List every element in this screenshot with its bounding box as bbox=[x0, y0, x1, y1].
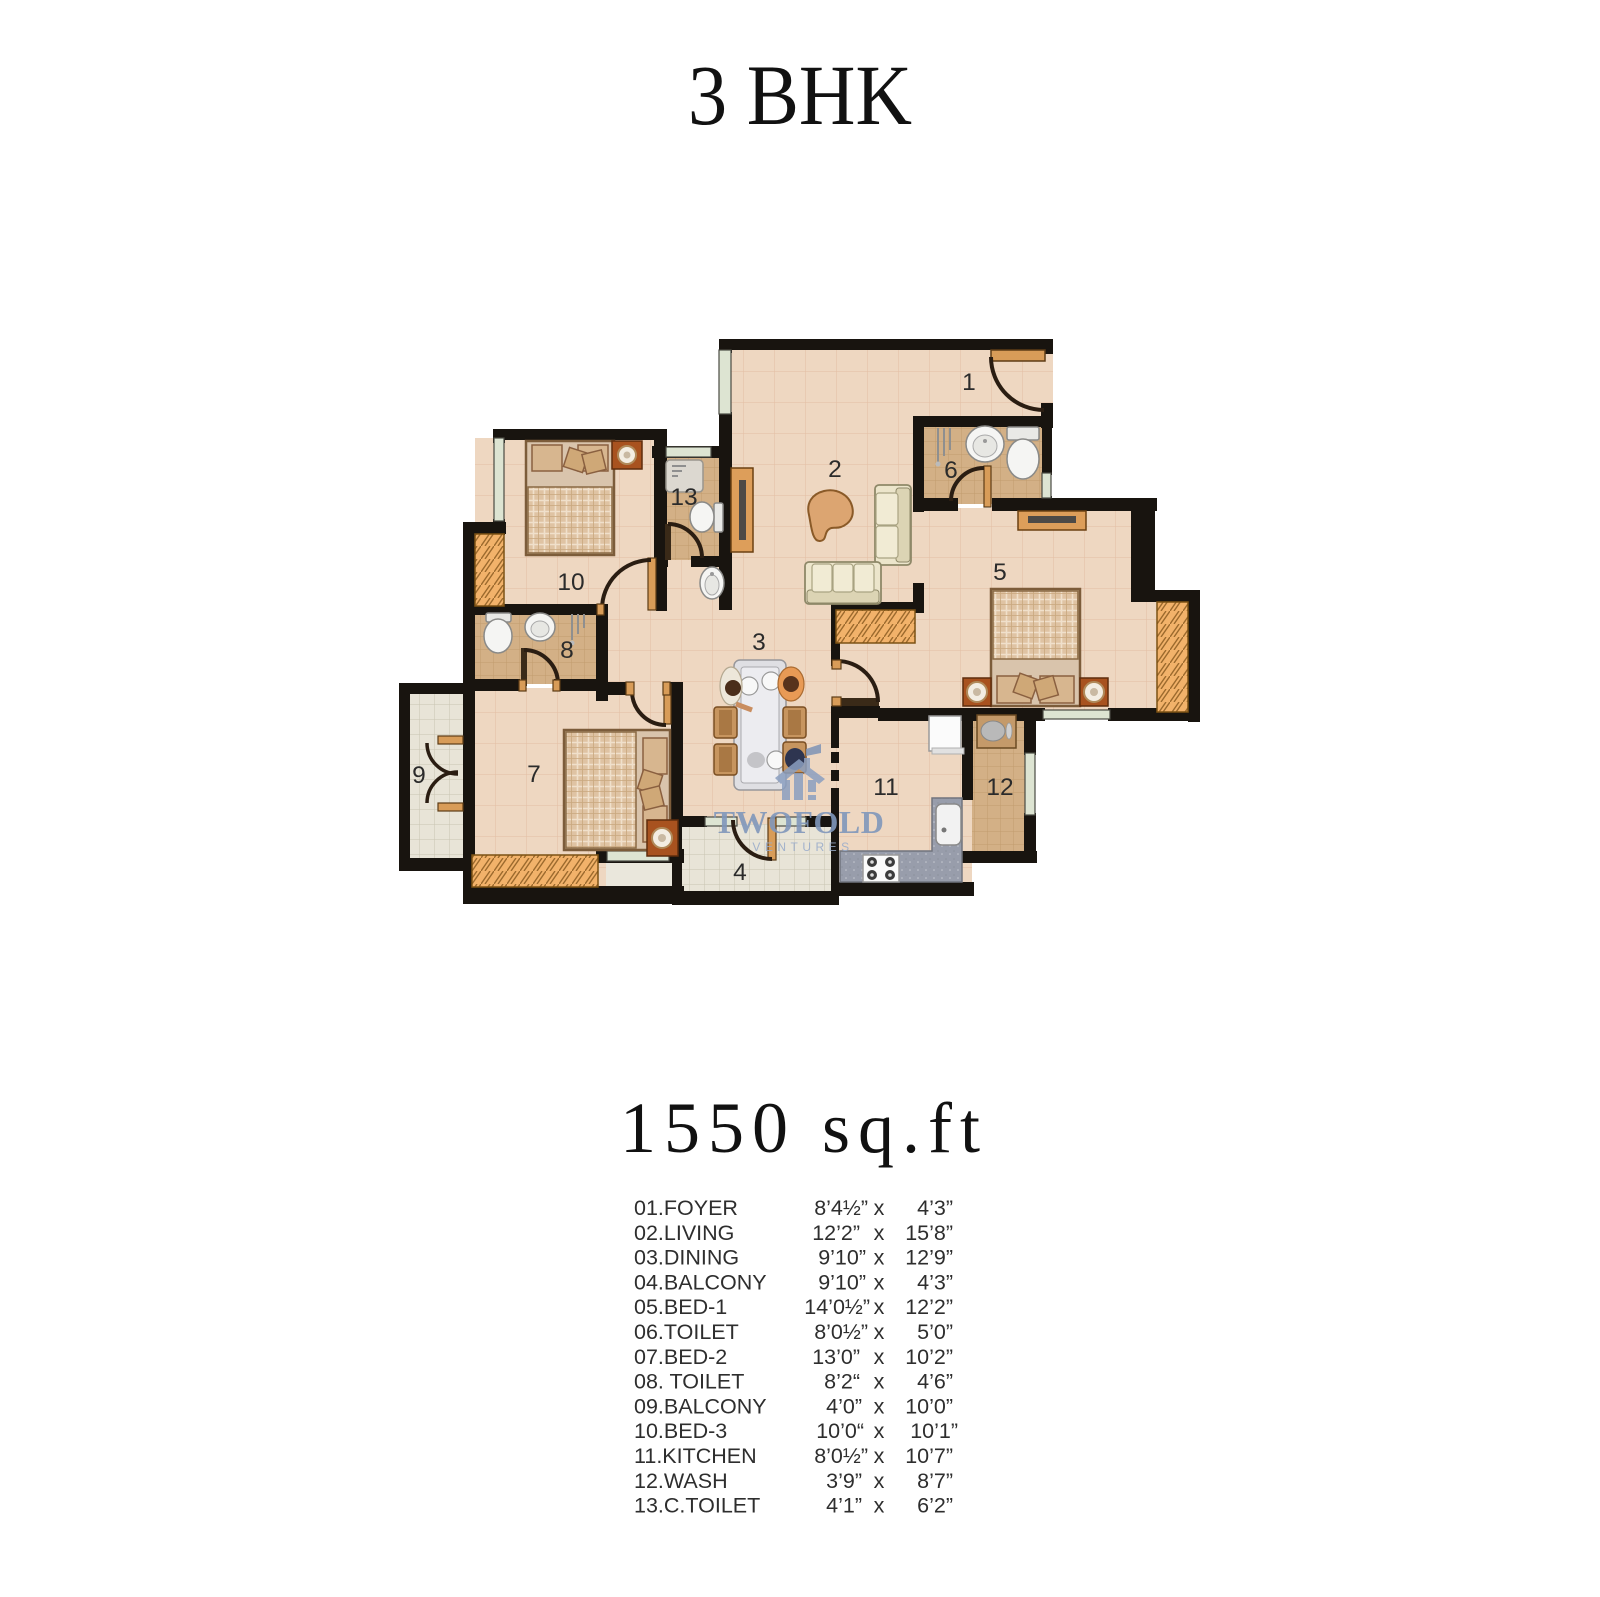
svg-text:13’0”: 13’0” bbox=[812, 1345, 860, 1369]
svg-text:6: 6 bbox=[944, 457, 958, 484]
svg-text:12.WASH: 12.WASH bbox=[634, 1469, 728, 1493]
svg-text:11.KITCHEN: 11.KITCHEN bbox=[634, 1444, 757, 1468]
svg-text:x: x bbox=[874, 1394, 885, 1418]
svg-text:07.BED-2: 07.BED-2 bbox=[634, 1345, 727, 1369]
svg-text:7: 7 bbox=[527, 761, 541, 788]
svg-text:13: 13 bbox=[670, 484, 697, 511]
svg-text:10.BED-3: 10.BED-3 bbox=[634, 1419, 727, 1443]
svg-text:x: x bbox=[874, 1494, 885, 1518]
svg-text:11: 11 bbox=[873, 774, 898, 801]
svg-text:10’2”: 10’2” bbox=[905, 1345, 953, 1369]
svg-text:14’0½”: 14’0½” bbox=[804, 1295, 870, 1319]
svg-text:x: x bbox=[874, 1196, 885, 1220]
svg-text:04.BALCONY: 04.BALCONY bbox=[634, 1270, 767, 1294]
svg-text:4’3”: 4’3” bbox=[917, 1270, 953, 1294]
svg-text:09.BALCONY: 09.BALCONY bbox=[634, 1394, 767, 1418]
svg-text:02.LIVING: 02.LIVING bbox=[634, 1221, 734, 1245]
svg-text:8’0½”: 8’0½” bbox=[814, 1444, 868, 1468]
svg-text:x: x bbox=[874, 1469, 885, 1493]
svg-text:5: 5 bbox=[993, 559, 1007, 586]
svg-text:08. TOILET: 08. TOILET bbox=[634, 1370, 744, 1394]
svg-text:x: x bbox=[874, 1320, 885, 1344]
svg-text:1: 1 bbox=[962, 369, 976, 396]
svg-text:12’2”: 12’2” bbox=[905, 1295, 953, 1319]
svg-text:13.C.TOILET: 13.C.TOILET bbox=[634, 1494, 760, 1518]
svg-text:3 BHK: 3 BHK bbox=[688, 47, 912, 143]
svg-text:10’7”: 10’7” bbox=[905, 1444, 953, 1468]
svg-text:TWOFOLD: TWOFOLD bbox=[714, 804, 885, 840]
svg-text:10’0“: 10’0“ bbox=[816, 1419, 864, 1443]
svg-text:01.FOYER: 01.FOYER bbox=[634, 1196, 738, 1220]
svg-text:03.DINING: 03.DINING bbox=[634, 1246, 739, 1270]
svg-text:4’1”: 4’1” bbox=[826, 1494, 862, 1518]
svg-text:12’2”: 12’2” bbox=[812, 1221, 860, 1245]
svg-text:3: 3 bbox=[752, 629, 766, 656]
svg-text:9’10”: 9’10” bbox=[818, 1270, 866, 1294]
svg-text:10: 10 bbox=[557, 569, 584, 596]
svg-text:4’6”: 4’6” bbox=[917, 1370, 953, 1394]
svg-text:x: x bbox=[874, 1370, 885, 1394]
svg-text:8’4½”: 8’4½” bbox=[814, 1196, 868, 1220]
svg-text:8: 8 bbox=[560, 637, 574, 664]
svg-text:x: x bbox=[874, 1246, 885, 1270]
svg-text:15’8”: 15’8” bbox=[905, 1221, 953, 1245]
svg-text:x: x bbox=[874, 1345, 885, 1369]
svg-text:12: 12 bbox=[986, 774, 1013, 801]
svg-text:4’3”: 4’3” bbox=[917, 1196, 953, 1220]
svg-text:x: x bbox=[874, 1221, 885, 1245]
svg-text:10’1”: 10’1” bbox=[910, 1419, 958, 1443]
svg-text:9’10”: 9’10” bbox=[818, 1246, 866, 1270]
svg-text:x: x bbox=[874, 1295, 885, 1319]
svg-text:4: 4 bbox=[733, 859, 747, 886]
svg-text:10’0”: 10’0” bbox=[905, 1394, 953, 1418]
svg-text:4’0”: 4’0” bbox=[826, 1394, 862, 1418]
svg-text:8’7”: 8’7” bbox=[917, 1469, 953, 1493]
svg-text:6’2”: 6’2” bbox=[917, 1494, 953, 1518]
svg-text:VENTURES: VENTURES bbox=[752, 840, 853, 854]
svg-text:x: x bbox=[874, 1419, 885, 1443]
svg-text:x: x bbox=[874, 1270, 885, 1294]
svg-text:8’2“: 8’2“ bbox=[824, 1370, 860, 1394]
svg-text:5’0”: 5’0” bbox=[917, 1320, 953, 1344]
svg-text:05.BED-1: 05.BED-1 bbox=[634, 1295, 727, 1319]
svg-text:9: 9 bbox=[412, 762, 426, 789]
svg-text:2: 2 bbox=[828, 456, 842, 483]
svg-text:06.TOILET: 06.TOILET bbox=[634, 1320, 739, 1344]
svg-text:3’9”: 3’9” bbox=[826, 1469, 862, 1493]
svg-text:8’0½”: 8’0½” bbox=[814, 1320, 868, 1344]
svg-text:12’9”: 12’9” bbox=[905, 1246, 953, 1270]
svg-text:x: x bbox=[874, 1444, 885, 1468]
